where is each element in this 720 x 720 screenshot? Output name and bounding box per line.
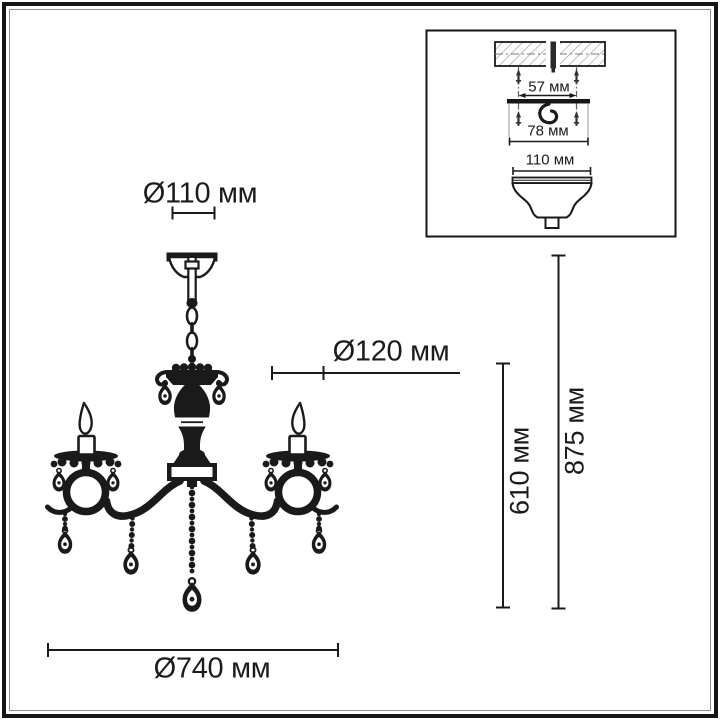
- suspension-chain: [187, 298, 198, 363]
- chandelier-silhouette: [48, 253, 337, 612]
- hanging-pin: [551, 42, 557, 69]
- canopy: [167, 253, 218, 304]
- center-baluster: [167, 383, 217, 487]
- dimension-lines: [48, 207, 566, 658]
- dim-cup-diameter: [272, 366, 460, 380]
- label-screw-spacing: 57 мм: [528, 80, 569, 95]
- label-overall-width: Ø740 мм: [154, 655, 271, 684]
- right-arm-assembly: [204, 403, 337, 575]
- diagram-page: Ø110 мм Ø120 мм Ø740 мм 610 мм 875 мм 57…: [0, 0, 720, 720]
- center-pendant: [183, 485, 202, 612]
- label-canopy-diameter: Ø110 мм: [143, 180, 258, 209]
- left-arm-assembly: [48, 403, 181, 575]
- label-bracket-width: 78 мм: [527, 124, 568, 139]
- label-overall-height: 875 мм: [562, 387, 589, 475]
- label-inset-canopy-diameter: 110 мм: [526, 153, 575, 168]
- label-body-height: 610 мм: [507, 427, 534, 515]
- label-cup-diameter: Ø120 мм: [333, 338, 450, 367]
